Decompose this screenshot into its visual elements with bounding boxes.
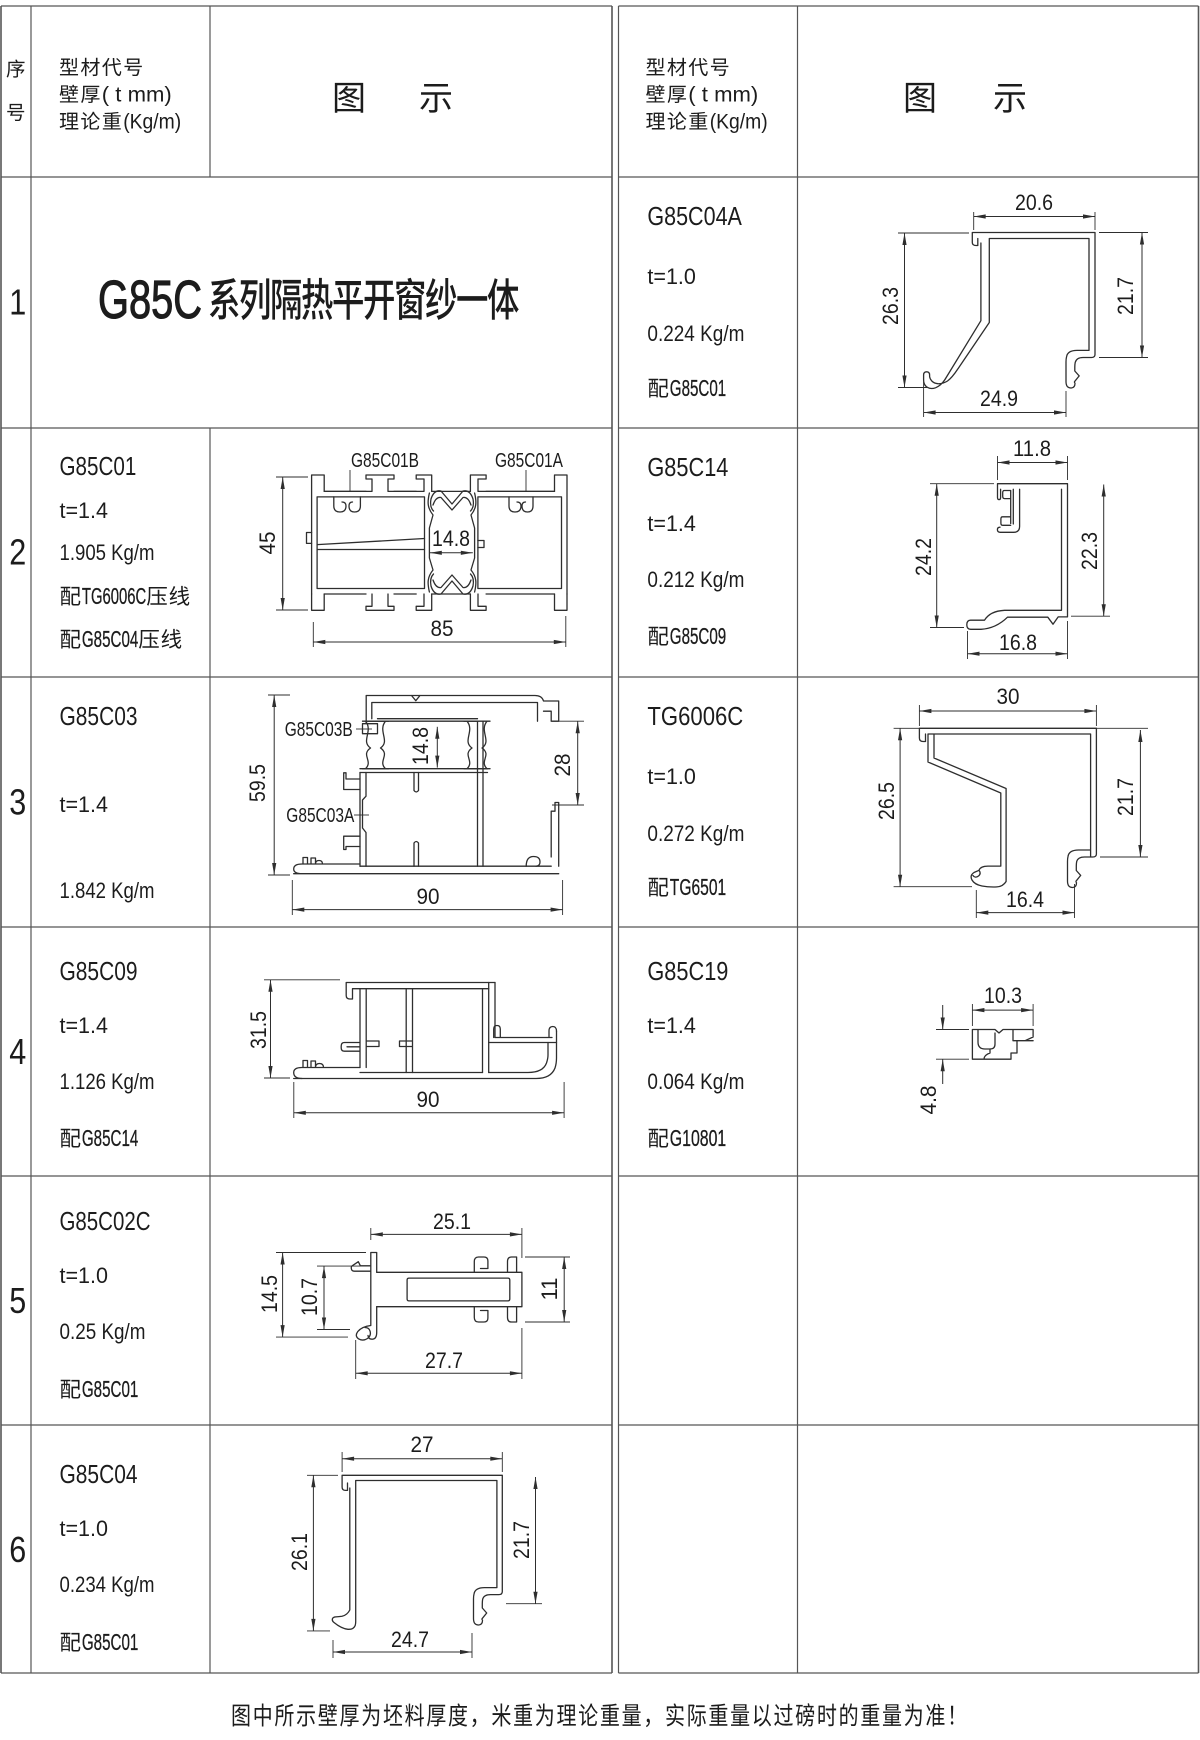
svg-text:1.842 Kg/m: 1.842 Kg/m (60, 878, 155, 903)
svg-text:G85C: G85C (98, 270, 202, 330)
svg-text:0.234 Kg/m: 0.234 Kg/m (60, 1572, 155, 1597)
svg-text:14.5: 14.5 (257, 1275, 282, 1313)
svg-text:24.2: 24.2 (911, 538, 936, 576)
svg-text:(Kg/m): (Kg/m) (123, 111, 181, 134)
svg-text:G85C01A: G85C01A (495, 450, 564, 472)
svg-text:14.8: 14.8 (432, 526, 470, 551)
svg-text:t=1.4: t=1.4 (60, 498, 109, 523)
svg-text:0.212 Kg/m: 0.212 Kg/m (647, 567, 744, 592)
svg-text:28: 28 (550, 754, 575, 777)
svg-text:22.3: 22.3 (1077, 532, 1102, 570)
svg-text:G85C03A: G85C03A (286, 805, 355, 827)
svg-text:G10801: G10801 (670, 1125, 726, 1151)
svg-text:G85C19: G85C19 (647, 958, 728, 986)
svg-text:t=1.4: t=1.4 (647, 1013, 696, 1038)
svg-text:21.7: 21.7 (1113, 778, 1138, 816)
svg-text:G85C03: G85C03 (60, 703, 138, 731)
svg-text:1.905 Kg/m: 1.905 Kg/m (60, 540, 155, 565)
svg-text:( t mm): ( t mm) (688, 84, 758, 107)
svg-text:G85C04: G85C04 (60, 1461, 138, 1489)
svg-text:14.8: 14.8 (408, 727, 433, 765)
svg-text:TG6501: TG6501 (670, 874, 726, 900)
svg-text:30: 30 (997, 684, 1020, 709)
svg-text:0.064 Kg/m: 0.064 Kg/m (647, 1069, 744, 1094)
svg-text:G85C01: G85C01 (60, 453, 137, 481)
svg-text:6: 6 (9, 1529, 26, 1570)
svg-text:20.6: 20.6 (1015, 190, 1053, 215)
svg-text:59.5: 59.5 (245, 764, 270, 802)
svg-text:t=1.0: t=1.0 (647, 764, 696, 789)
svg-text:0.224 Kg/m: 0.224 Kg/m (647, 321, 744, 346)
svg-text:G85C01: G85C01 (82, 1629, 138, 1655)
svg-text:G85C14: G85C14 (82, 1125, 139, 1151)
svg-text:4.8: 4.8 (916, 1086, 941, 1115)
svg-text:21.7: 21.7 (1113, 277, 1138, 315)
svg-text:1: 1 (9, 282, 26, 323)
svg-text:4: 4 (9, 1031, 26, 1072)
svg-text:24.9: 24.9 (980, 386, 1018, 411)
svg-text:G85C01B: G85C01B (351, 450, 419, 472)
svg-text:t=1.0: t=1.0 (60, 1516, 109, 1541)
svg-text:1.126 Kg/m: 1.126 Kg/m (60, 1069, 155, 1094)
svg-text:0.272 Kg/m: 0.272 Kg/m (647, 821, 744, 846)
svg-text:G85C09: G85C09 (670, 623, 726, 649)
svg-text:21.7: 21.7 (509, 1521, 534, 1559)
svg-text:11.8: 11.8 (1013, 436, 1051, 461)
svg-text:G85C01: G85C01 (82, 1376, 138, 1402)
svg-text:2: 2 (9, 532, 26, 573)
svg-text:27.7: 27.7 (425, 1348, 463, 1373)
svg-text:25.1: 25.1 (433, 1209, 471, 1234)
svg-text:45: 45 (255, 532, 280, 555)
svg-text:0.25 Kg/m: 0.25 Kg/m (60, 1319, 146, 1344)
svg-text:10.3: 10.3 (984, 983, 1022, 1008)
svg-text:26.5: 26.5 (874, 782, 899, 820)
svg-text:t=1.4: t=1.4 (60, 792, 109, 817)
svg-text:t=1.0: t=1.0 (647, 264, 696, 289)
svg-text:t=1.4: t=1.4 (60, 1013, 109, 1038)
svg-text:27: 27 (411, 1432, 434, 1457)
svg-text:(Kg/m): (Kg/m) (710, 111, 768, 134)
svg-text:3: 3 (9, 782, 26, 823)
svg-text:31.5: 31.5 (246, 1011, 271, 1049)
svg-text:( t mm): ( t mm) (102, 84, 172, 107)
svg-text:G85C01: G85C01 (670, 375, 726, 401)
svg-text:26.3: 26.3 (878, 287, 903, 325)
svg-text:24.7: 24.7 (391, 1627, 429, 1652)
svg-text:G85C02C: G85C02C (60, 1208, 151, 1236)
svg-text:t=1.4: t=1.4 (647, 511, 696, 536)
svg-text:26.1: 26.1 (287, 1533, 312, 1571)
svg-text:G85C14: G85C14 (647, 454, 728, 482)
svg-text:85: 85 (431, 616, 454, 641)
svg-text:10.7: 10.7 (297, 1278, 322, 1316)
svg-text:G85C09: G85C09 (60, 958, 138, 986)
svg-text:16.8: 16.8 (999, 630, 1037, 655)
svg-text:G85C04: G85C04 (82, 626, 139, 652)
svg-text:t=1.0: t=1.0 (60, 1263, 109, 1288)
svg-text:90: 90 (417, 884, 440, 909)
svg-text:16.4: 16.4 (1006, 887, 1044, 912)
svg-text:TG6006C: TG6006C (647, 703, 743, 731)
svg-text:90: 90 (417, 1087, 440, 1112)
svg-text:G85C03B: G85C03B (285, 719, 353, 741)
svg-text:5: 5 (9, 1280, 26, 1321)
svg-text:TG6006C: TG6006C (82, 583, 146, 609)
svg-text:11: 11 (537, 1278, 562, 1301)
svg-text:G85C04A: G85C04A (647, 203, 742, 231)
